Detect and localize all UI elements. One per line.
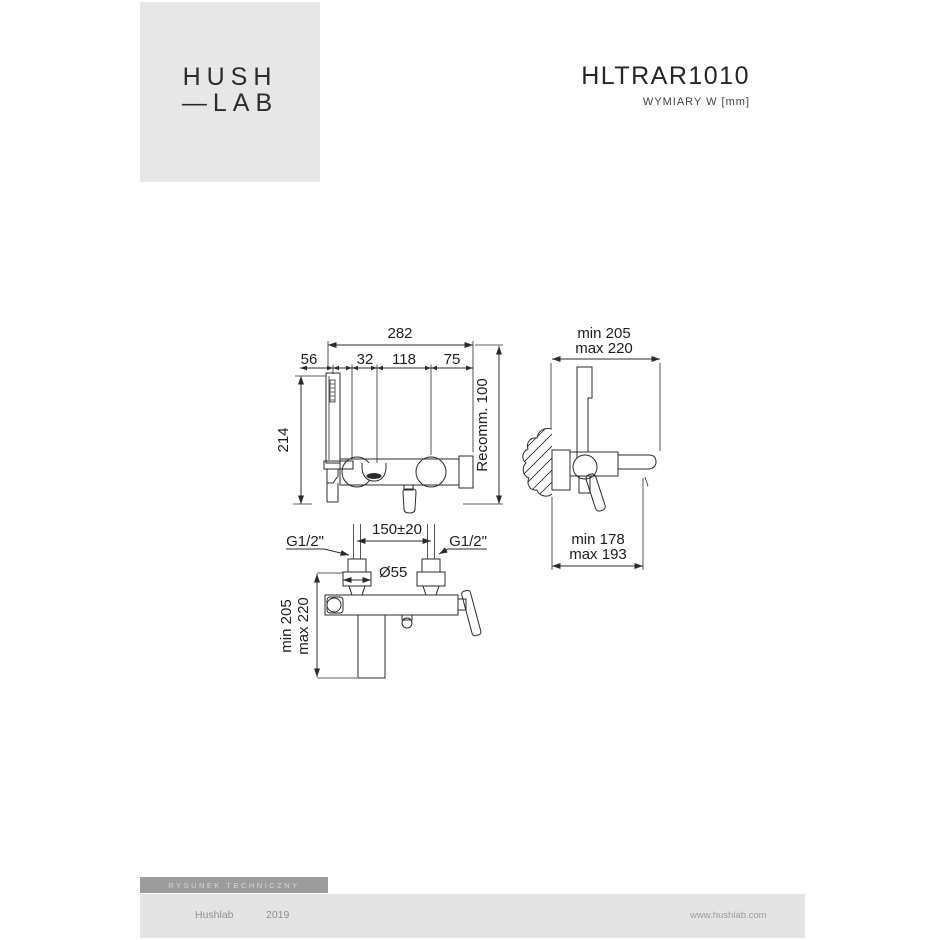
dim-282-label: 282 xyxy=(387,325,412,342)
dim-g12-right-label: G1/2" xyxy=(449,533,487,550)
units-note: WYMIARY W [mm] xyxy=(581,96,750,108)
dim-depth-min-label: min 205 xyxy=(278,599,295,652)
shower-holder-top xyxy=(327,598,341,612)
brand-logo-text: HUSH —LAB xyxy=(140,64,320,116)
product-code: HLTRAR1010 xyxy=(581,62,750,91)
dim-75-label: 75 xyxy=(444,351,461,368)
handle-top xyxy=(461,590,482,637)
technical-sheet-page: HUSH —LAB HLTRAR1010 WYMIARY W [mm] 282 … xyxy=(0,0,940,940)
dim-32-label: 32 xyxy=(357,351,374,368)
footer-year: 2019 xyxy=(266,909,289,921)
brand-logo-block: HUSH —LAB xyxy=(140,2,320,182)
dim-214-label: 214 xyxy=(275,427,292,452)
wall-hatch xyxy=(500,392,570,546)
spout-side xyxy=(618,455,656,469)
mixer-top xyxy=(325,590,482,678)
drawing-type-label: RYSUNEK TECHNICZNY xyxy=(168,881,299,890)
shower-riser-side xyxy=(577,367,592,458)
header: HLTRAR1010 WYMIARY W [mm] xyxy=(581,62,750,108)
wall-plate-side xyxy=(552,450,570,490)
dim-dia55-label: Ø55 xyxy=(379,564,407,581)
dim-depth-max-label: max 220 xyxy=(295,597,312,655)
dim-118-label: 118 xyxy=(392,351,416,368)
spout-top xyxy=(358,615,385,678)
side-view: min 205 max 220 min 17 xyxy=(500,325,660,570)
technical-drawing: 282 56 32 118 75 214 Recomm. 100 xyxy=(270,315,690,710)
dim-recomm-100-label: Recomm. 100 xyxy=(474,378,491,471)
mixer-side xyxy=(552,367,656,512)
dim-max220-label: max 220 xyxy=(575,340,633,357)
dim-g12-left-label: G1/2" xyxy=(286,533,324,550)
dim-56-label: 56 xyxy=(301,351,318,368)
mixer-body-front xyxy=(340,456,473,513)
footer-band: Hushlab 2019 www.hushlab.com xyxy=(140,894,805,938)
dim-max193-label: max 193 xyxy=(569,546,627,563)
footer-website: www.hushlab.com xyxy=(690,910,767,921)
logo-line-2: —LAB xyxy=(140,90,320,116)
footer-brand: Hushlab xyxy=(195,909,234,921)
logo-line-1: HUSH xyxy=(140,64,320,90)
top-view: 150±20 G1/2" G1/2" Ø55 xyxy=(278,521,487,678)
handle-grip-front xyxy=(403,489,416,513)
drawing-type-bar: RYSUNEK TECHNICZNY xyxy=(140,877,328,893)
dim-150-label: 150±20 xyxy=(372,521,422,538)
front-view: 282 56 32 118 75 214 Recomm. 100 xyxy=(275,325,503,513)
